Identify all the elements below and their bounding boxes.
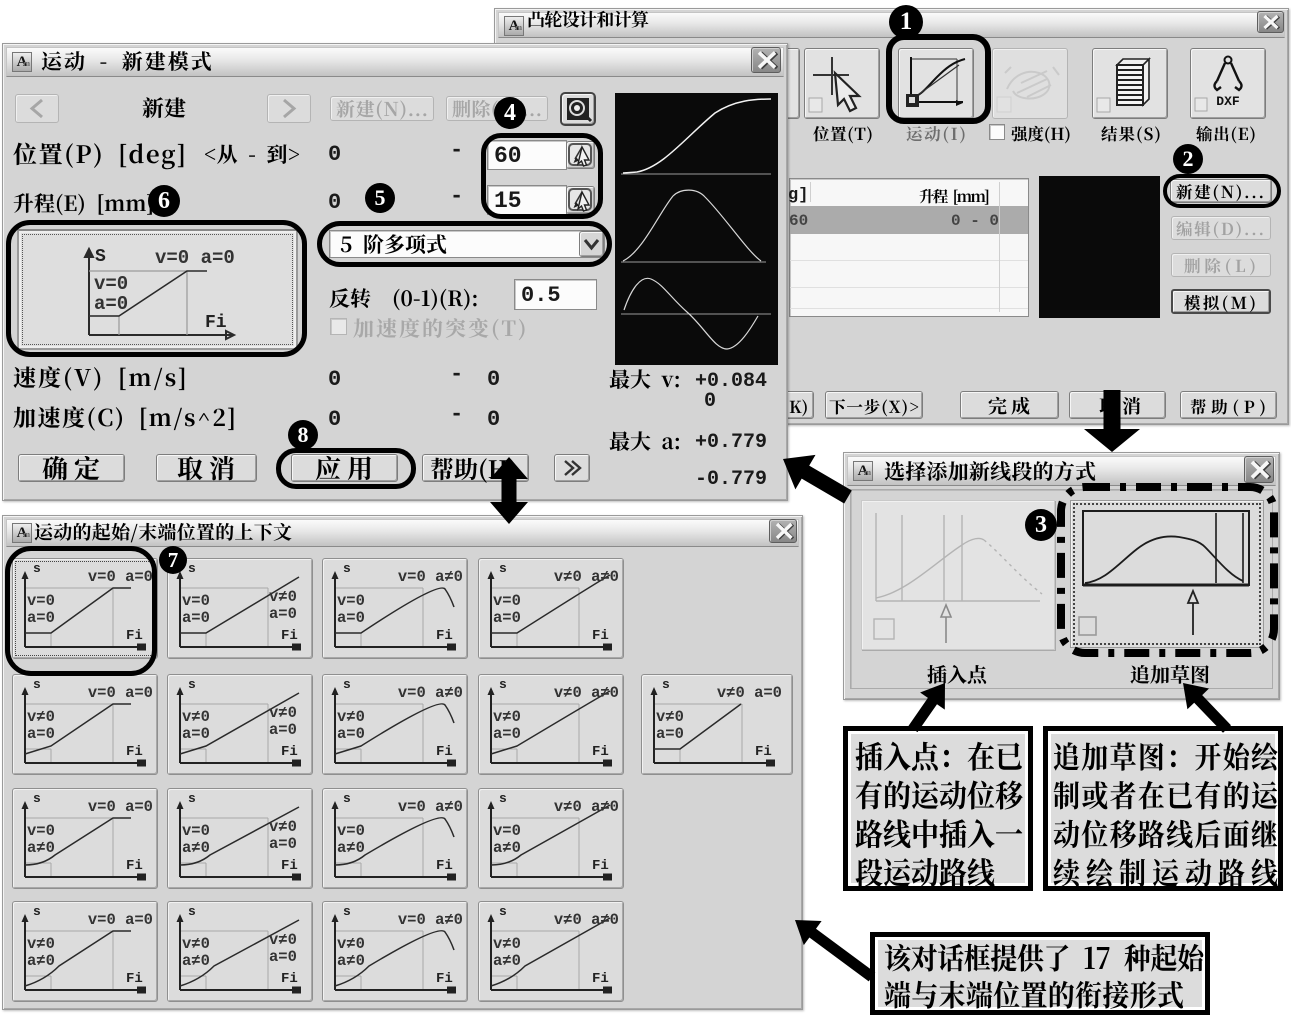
svg-text:Fi: Fi bbox=[281, 971, 298, 987]
svg-text:a≠0: a≠0 bbox=[27, 952, 55, 970]
svg-text:s: s bbox=[343, 904, 351, 919]
svg-text:v=0: v=0 bbox=[337, 822, 365, 840]
svg-text:a=0: a=0 bbox=[337, 609, 365, 627]
svg-text:Fi: Fi bbox=[281, 858, 298, 874]
svg-text:v=0: v=0 bbox=[337, 592, 365, 610]
svg-text:v≠0: v≠0 bbox=[656, 708, 684, 726]
svg-text:a=0: a=0 bbox=[182, 725, 210, 743]
svg-text:v=0 a≠0: v=0 a≠0 bbox=[398, 911, 463, 929]
svg-text:Fi: Fi bbox=[436, 858, 453, 874]
svg-text:v≠0 a≠0: v≠0 a≠0 bbox=[554, 798, 619, 816]
svg-text:Fi: Fi bbox=[592, 858, 609, 874]
svg-text:Fi: Fi bbox=[126, 858, 143, 874]
svg-text:Fi: Fi bbox=[592, 628, 609, 644]
svg-text:v≠0: v≠0 bbox=[337, 935, 365, 953]
svg-text:s: s bbox=[499, 561, 507, 576]
svg-text:a=0: a=0 bbox=[493, 725, 521, 743]
svg-text:a=0: a=0 bbox=[269, 721, 297, 739]
svg-text:a≠0: a≠0 bbox=[493, 839, 521, 857]
svg-text:s: s bbox=[33, 904, 41, 919]
svg-text:v≠0: v≠0 bbox=[182, 708, 210, 726]
svg-text:s: s bbox=[33, 677, 41, 692]
svg-text:s: s bbox=[343, 791, 351, 806]
svg-text:v=0 a=0: v=0 a=0 bbox=[88, 684, 153, 702]
svg-text:v≠0: v≠0 bbox=[269, 588, 297, 606]
svg-text:v≠0: v≠0 bbox=[182, 935, 210, 953]
svg-text:a≠0: a≠0 bbox=[493, 952, 521, 970]
svg-text:v≠0 a≠0: v≠0 a≠0 bbox=[554, 568, 619, 586]
svg-text:v≠0: v≠0 bbox=[269, 931, 297, 949]
svg-text:Fi: Fi bbox=[126, 971, 143, 987]
svg-text:a=0: a=0 bbox=[656, 725, 684, 743]
svg-text:v=0 a=0: v=0 a=0 bbox=[88, 798, 153, 816]
svg-text:v≠0: v≠0 bbox=[27, 708, 55, 726]
svg-text:a≠0: a≠0 bbox=[182, 952, 210, 970]
svg-text:v≠0 a=0: v≠0 a=0 bbox=[717, 684, 782, 702]
svg-text:v≠0: v≠0 bbox=[337, 708, 365, 726]
svg-text:v=0: v=0 bbox=[182, 592, 210, 610]
svg-text:s: s bbox=[188, 677, 196, 692]
svg-text:Fi: Fi bbox=[436, 628, 453, 644]
svg-text:a≠0: a≠0 bbox=[27, 839, 55, 857]
svg-text:v≠0: v≠0 bbox=[269, 818, 297, 836]
svg-text:s: s bbox=[662, 677, 670, 692]
svg-text:v=0 a≠0: v=0 a≠0 bbox=[398, 684, 463, 702]
svg-text:a≠0: a≠0 bbox=[182, 839, 210, 857]
svg-text:v=0: v=0 bbox=[493, 592, 521, 610]
svg-text:a=0: a=0 bbox=[337, 725, 365, 743]
svg-text:s: s bbox=[343, 677, 351, 692]
svg-text:s: s bbox=[499, 791, 507, 806]
svg-text:s: s bbox=[33, 791, 41, 806]
svg-text:a≠0: a≠0 bbox=[337, 952, 365, 970]
svg-text:v≠0 a≠0: v≠0 a≠0 bbox=[554, 911, 619, 929]
svg-text:v=0: v=0 bbox=[182, 822, 210, 840]
svg-text:v=0 a≠0: v=0 a≠0 bbox=[398, 798, 463, 816]
svg-text:s: s bbox=[188, 561, 196, 576]
svg-text:v=0 a≠0: v=0 a≠0 bbox=[398, 568, 463, 586]
svg-text:v=0: v=0 bbox=[493, 822, 521, 840]
svg-text:Fi: Fi bbox=[755, 744, 772, 760]
svg-text:v=0: v=0 bbox=[27, 822, 55, 840]
svg-text:Fi: Fi bbox=[592, 744, 609, 760]
svg-text:s: s bbox=[499, 677, 507, 692]
svg-text:Fi: Fi bbox=[281, 628, 298, 644]
svg-text:s: s bbox=[188, 791, 196, 806]
svg-text:a≠0: a≠0 bbox=[337, 839, 365, 857]
svg-text:v≠0 a≠0: v≠0 a≠0 bbox=[554, 684, 619, 702]
svg-text:v≠0: v≠0 bbox=[269, 704, 297, 722]
svg-text:Fi: Fi bbox=[436, 971, 453, 987]
svg-text:v≠0: v≠0 bbox=[493, 708, 521, 726]
svg-text:s: s bbox=[188, 904, 196, 919]
svg-text:Fi: Fi bbox=[126, 744, 143, 760]
svg-text:Fi: Fi bbox=[281, 744, 298, 760]
svg-text:s: s bbox=[499, 904, 507, 919]
svg-text:Fi: Fi bbox=[592, 971, 609, 987]
svg-text:a=0: a=0 bbox=[269, 835, 297, 853]
svg-text:Fi: Fi bbox=[436, 744, 453, 760]
svg-text:DXF: DXF bbox=[1216, 94, 1240, 109]
svg-text:a=0: a=0 bbox=[269, 948, 297, 966]
svg-text:a=0: a=0 bbox=[493, 609, 521, 627]
svg-text:s: s bbox=[343, 561, 351, 576]
svg-text:v=0 a=0: v=0 a=0 bbox=[88, 911, 153, 929]
svg-text:v≠0: v≠0 bbox=[493, 935, 521, 953]
svg-text:a=0: a=0 bbox=[182, 609, 210, 627]
svg-text:a=0: a=0 bbox=[27, 725, 55, 743]
svg-text:v≠0: v≠0 bbox=[27, 935, 55, 953]
svg-text:a=0: a=0 bbox=[269, 605, 297, 623]
